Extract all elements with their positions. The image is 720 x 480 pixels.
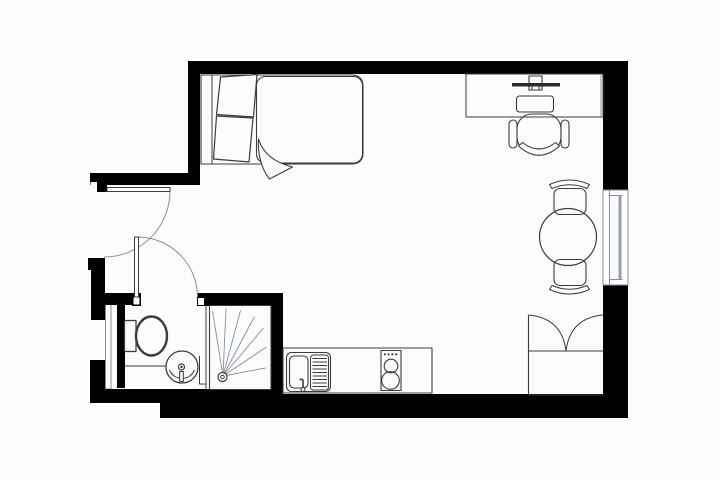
floor-plan-page [0,0,720,480]
plumbing-wall [117,305,125,388]
stove-knob [391,353,393,355]
toilet-bowl [136,317,167,356]
dining-chair-top-backrest [550,180,590,189]
shower [206,306,271,390]
wardrobe-door-arc-left [529,315,567,351]
bed [201,75,363,180]
stove-knob [388,353,390,355]
wall-insets [91,182,205,305]
monitor-screen [512,83,560,87]
top-left-corner-wall [188,61,200,185]
bath-frame-inset-left [134,298,140,305]
window [603,190,628,285]
bathroom-top-wall-left [105,293,133,305]
left-wall-mid [91,268,105,320]
desk-chair [509,114,569,155]
bathroom-door-panel [135,237,139,297]
right-wall-upper [603,61,628,190]
bathroom-sink [125,351,206,384]
keyboard [517,96,554,112]
dining-table [540,209,597,266]
stove-knob [395,353,397,355]
vanity-side [200,356,207,384]
desk-chair-armrest-right [561,120,569,148]
entry-frame-inset [91,182,98,190]
dining-chair-bottom-backrest [550,286,590,295]
desk [466,74,603,117]
floor-plan-svg [0,0,720,480]
kitchen [283,348,432,393]
sink-tap-base [301,388,305,392]
wardrobe-door-arc-right [566,315,603,351]
desk-chair-armrest-left [509,120,517,148]
bathroom-right-wall [271,293,283,393]
wardrobe [529,315,604,395]
pillow-2 [214,116,254,162]
basin-tap-dot-inner [180,366,182,368]
bathroom-door-swing-arc [139,237,198,297]
toilet [125,317,168,356]
basin-tap-handle [180,372,184,382]
entry-door-jamb [97,173,107,192]
bed-duvet [257,77,363,164]
right-wall-lower [603,285,628,418]
top-wall [188,61,628,74]
shower-drain [218,373,227,382]
dining-set [540,180,597,294]
stove-knob [384,353,386,355]
pillow-1 [217,75,258,118]
pipe-shaft [106,301,112,389]
shaft-outline [106,301,112,389]
left-wall-lower [90,360,105,393]
entry-door-panel [107,188,170,192]
toilet-tank [125,321,137,352]
window-opening [603,190,628,285]
bath-frame-inset-right [198,298,204,305]
bottom-wall [160,394,628,418]
bathroom-door [135,237,198,297]
bathroom-top-wall-right [197,293,283,306]
